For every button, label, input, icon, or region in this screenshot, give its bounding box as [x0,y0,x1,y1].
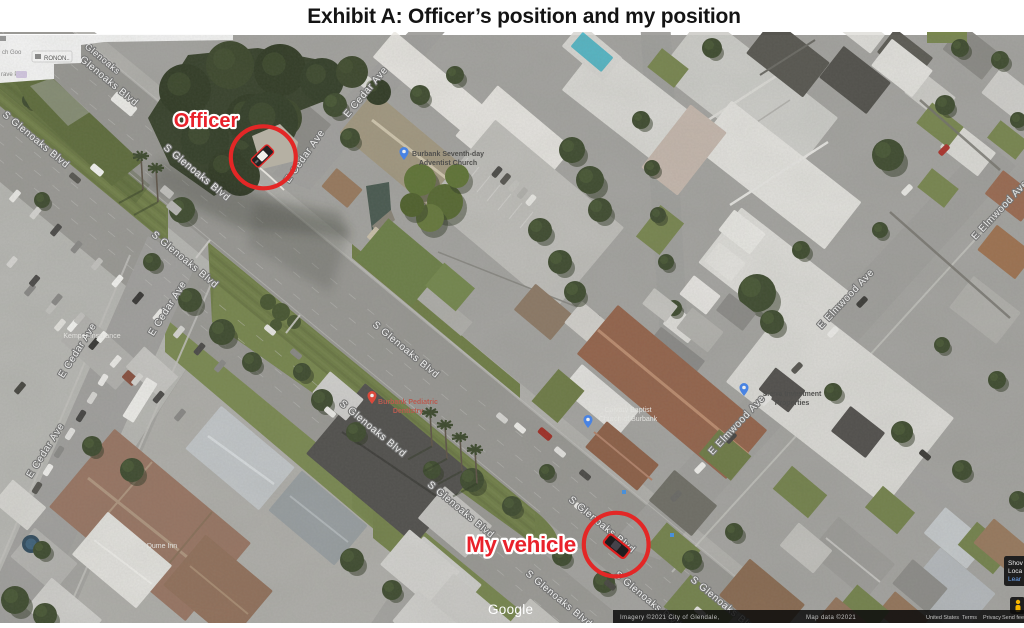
svg-text:Imagery ©2021 City of Glendale: Imagery ©2021 City of Glendale, [620,614,720,621]
svg-text:Google: Google [488,602,533,617]
svg-text:Lear: Lear [1008,576,1022,583]
svg-text:Send feedb.: Send feedb. [1002,615,1024,621]
svg-text:Map data ©2021: Map data ©2021 [806,614,856,621]
svg-text:Privacy: Privacy [983,615,1001,621]
svg-text:Loca: Loca [1008,568,1022,575]
svg-text:United States: United States [926,615,959,621]
svg-text:Shov: Shov [1008,560,1024,567]
svg-text:Officer: Officer [174,110,239,132]
svg-text:Terms: Terms [962,615,977,621]
svg-text:My vehicle: My vehicle [466,532,576,557]
